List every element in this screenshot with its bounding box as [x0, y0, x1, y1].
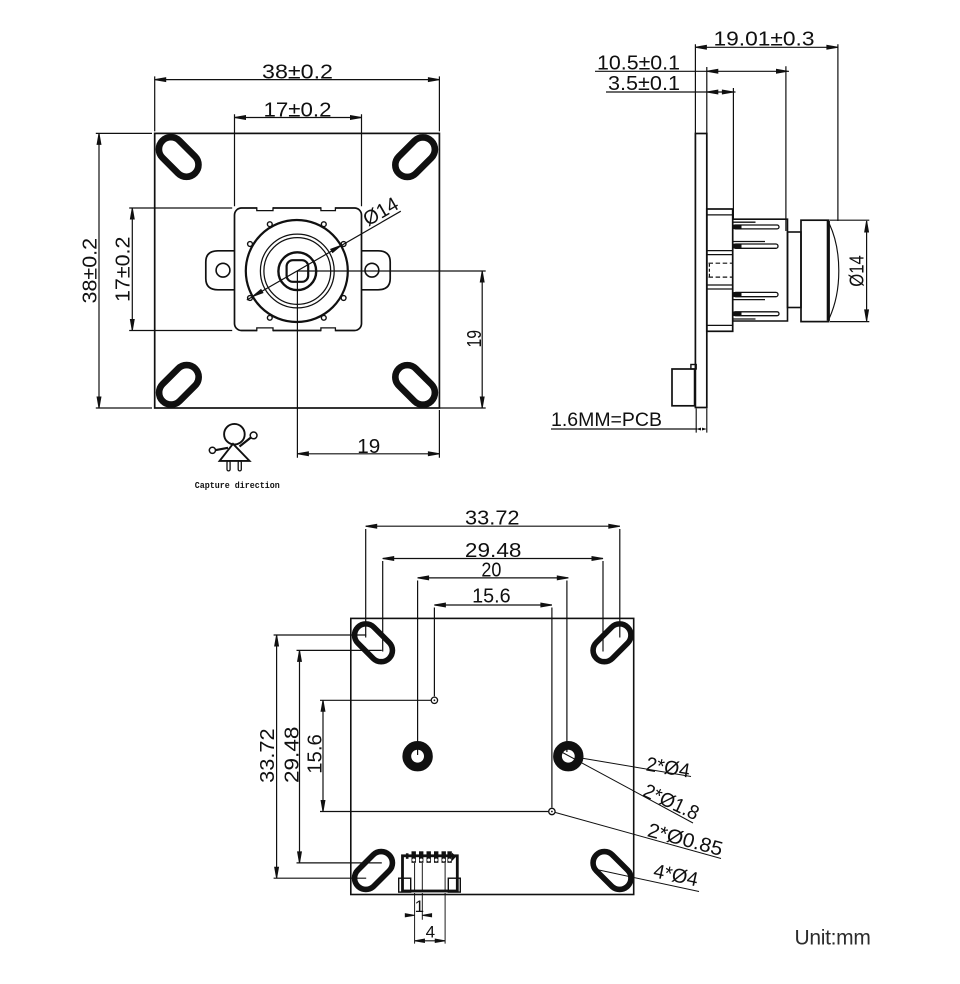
- svg-text:33.72: 33.72: [465, 508, 520, 530]
- svg-text:15.6: 15.6: [472, 585, 511, 607]
- svg-text:38±0.2: 38±0.2: [79, 238, 101, 304]
- svg-text:19.01±0.3: 19.01±0.3: [714, 28, 815, 50]
- svg-text:2*Ø4: 2*Ø4: [644, 754, 691, 783]
- svg-text:17±0.2: 17±0.2: [113, 237, 135, 303]
- svg-text:20: 20: [481, 559, 501, 581]
- svg-text:3.5±0.1: 3.5±0.1: [608, 73, 680, 95]
- svg-text:1.6MM=PCB: 1.6MM=PCB: [551, 410, 662, 431]
- svg-text:Ø14: Ø14: [846, 255, 868, 287]
- svg-text:Unit:mm: Unit:mm: [795, 927, 871, 950]
- svg-text:19: 19: [464, 330, 486, 348]
- svg-text:17±0.2: 17±0.2: [264, 100, 332, 122]
- svg-text:15.6: 15.6: [305, 734, 327, 774]
- svg-text:33.72: 33.72: [257, 728, 279, 783]
- svg-text:29.48: 29.48: [282, 727, 304, 784]
- svg-text:4: 4: [426, 922, 435, 941]
- svg-text:10.5±0.1: 10.5±0.1: [597, 53, 680, 75]
- svg-text:2*Ø1.8: 2*Ø1.8: [640, 780, 703, 825]
- svg-text:Capture direction: Capture direction: [195, 481, 280, 491]
- svg-text:19: 19: [357, 436, 380, 458]
- svg-text:38±0.2: 38±0.2: [262, 62, 333, 84]
- svg-text:1: 1: [415, 897, 424, 916]
- svg-text:Ø14: Ø14: [359, 193, 402, 231]
- svg-text:2*Ø0.85: 2*Ø0.85: [645, 820, 725, 861]
- svg-text:4*Ø4: 4*Ø4: [651, 860, 700, 891]
